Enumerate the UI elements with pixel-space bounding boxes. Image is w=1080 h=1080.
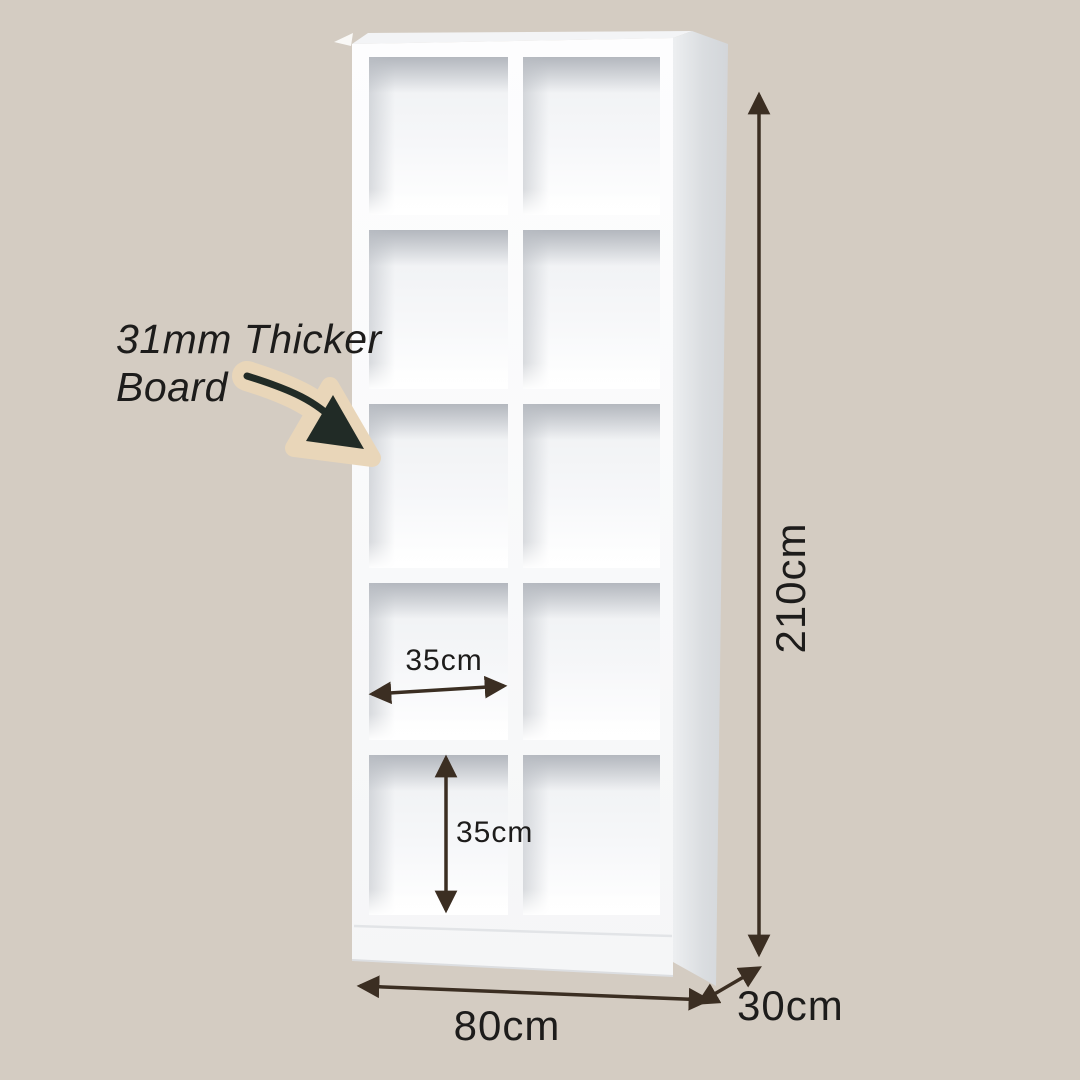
shelf-side-panel [673,31,728,986]
corner-highlight [334,33,353,46]
shelf-cube [523,755,660,915]
cell-height-dimension-label: 35cm [456,816,533,850]
bookshelf-illustration [0,0,1080,1080]
shelf-cube [369,230,508,389]
shelf-cube [523,230,660,389]
height-dimension-label: 210cm [767,522,815,653]
thicker-board-note: 31mm Thicker Board [116,316,382,412]
cell-width-dimension-label: 35cm [405,644,482,678]
shelf-cube [523,404,660,568]
product-dimension-diagram: 31mm Thicker Board 210cm 80cm 30cm 35cm … [0,0,1080,1080]
shelf-cube [369,404,508,568]
thicker-board-note-line2: Board [116,364,382,412]
thicker-board-note-line1: 31mm Thicker [116,316,382,364]
shelf-cube [523,57,660,215]
shelf-cube [369,57,508,215]
width-dimension-label: 80cm [454,1002,561,1050]
shelf-cube [523,583,660,740]
depth-dimension-label: 30cm [737,982,844,1030]
width-dimension-arrow [360,986,708,1000]
